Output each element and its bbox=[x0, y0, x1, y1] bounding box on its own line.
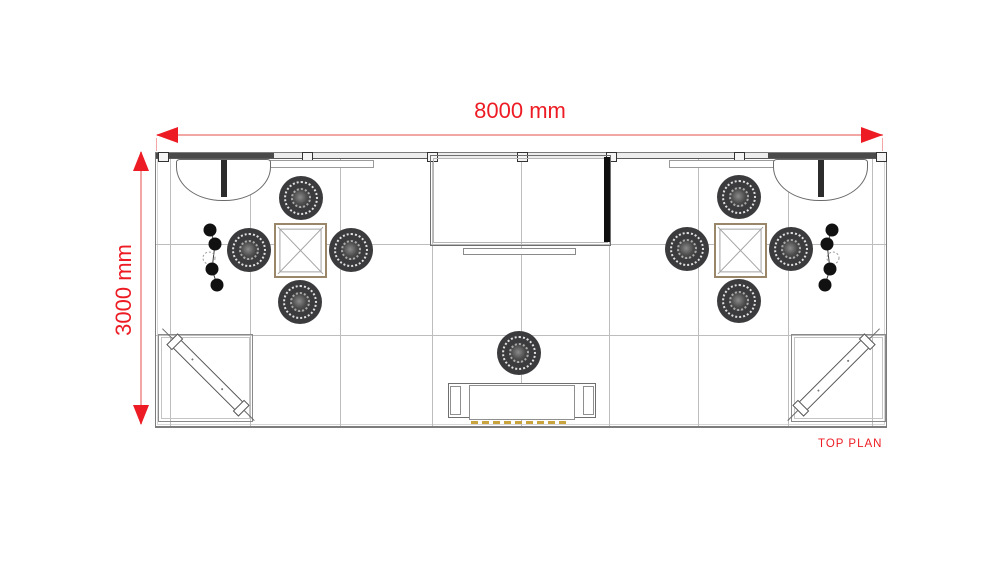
arrow-right-icon bbox=[861, 127, 883, 143]
pendant-lights-chain bbox=[810, 219, 842, 299]
grid-line-vertical bbox=[698, 153, 699, 426]
grid-line-vertical bbox=[340, 153, 341, 426]
room-shelf bbox=[463, 248, 576, 255]
back-wall-dark-segment bbox=[768, 153, 886, 158]
curved-counter bbox=[176, 159, 271, 201]
chair bbox=[279, 176, 323, 220]
grid-line-vertical bbox=[788, 153, 789, 426]
wall-joint bbox=[158, 152, 169, 162]
wall-graphic-panel bbox=[259, 160, 374, 168]
counter-inner bbox=[469, 385, 575, 420]
arrow-down-icon bbox=[133, 405, 149, 425]
extension-line bbox=[156, 138, 157, 151]
chair bbox=[717, 279, 761, 323]
arrow-left-icon bbox=[156, 127, 178, 143]
pendant-lights-chain bbox=[200, 219, 232, 299]
counter-cap bbox=[450, 386, 461, 415]
wall-joint bbox=[876, 152, 887, 162]
chair bbox=[278, 280, 322, 324]
chair bbox=[769, 227, 813, 271]
table-top-graphic bbox=[276, 225, 325, 276]
pendant-chain-graphic bbox=[810, 219, 842, 299]
central-room bbox=[430, 155, 611, 246]
chair bbox=[717, 175, 761, 219]
room-inner-line bbox=[433, 158, 608, 243]
counter-post bbox=[818, 160, 824, 197]
table-top-graphic bbox=[716, 225, 765, 276]
extension-line bbox=[882, 138, 883, 151]
back-wall-dark-segment bbox=[156, 153, 274, 158]
door-panel bbox=[604, 157, 610, 242]
led-strip bbox=[471, 421, 569, 424]
chair bbox=[497, 331, 541, 375]
height-dimension-label: 3000 mm bbox=[112, 230, 136, 350]
drawing-caption: TOP PLAN bbox=[818, 438, 898, 450]
width-dimension-line bbox=[157, 134, 883, 136]
pendant-chain-graphic bbox=[200, 219, 232, 299]
top-plan-drawing: 8000 mm 3000 mm TOP PLAN bbox=[0, 0, 1000, 563]
plan bbox=[155, 152, 887, 428]
counter-post bbox=[221, 160, 227, 197]
wall-graphic-panel bbox=[669, 160, 781, 168]
chair bbox=[665, 227, 709, 271]
arrow-up-icon bbox=[133, 151, 149, 171]
width-dimension-label: 8000 mm bbox=[155, 99, 885, 123]
chair bbox=[329, 228, 373, 272]
meeting-table bbox=[274, 223, 327, 278]
counter-cap bbox=[583, 386, 594, 415]
chair bbox=[227, 228, 271, 272]
height-dimension-line bbox=[140, 152, 142, 424]
reception-counter bbox=[448, 383, 596, 418]
meeting-table bbox=[714, 223, 767, 278]
